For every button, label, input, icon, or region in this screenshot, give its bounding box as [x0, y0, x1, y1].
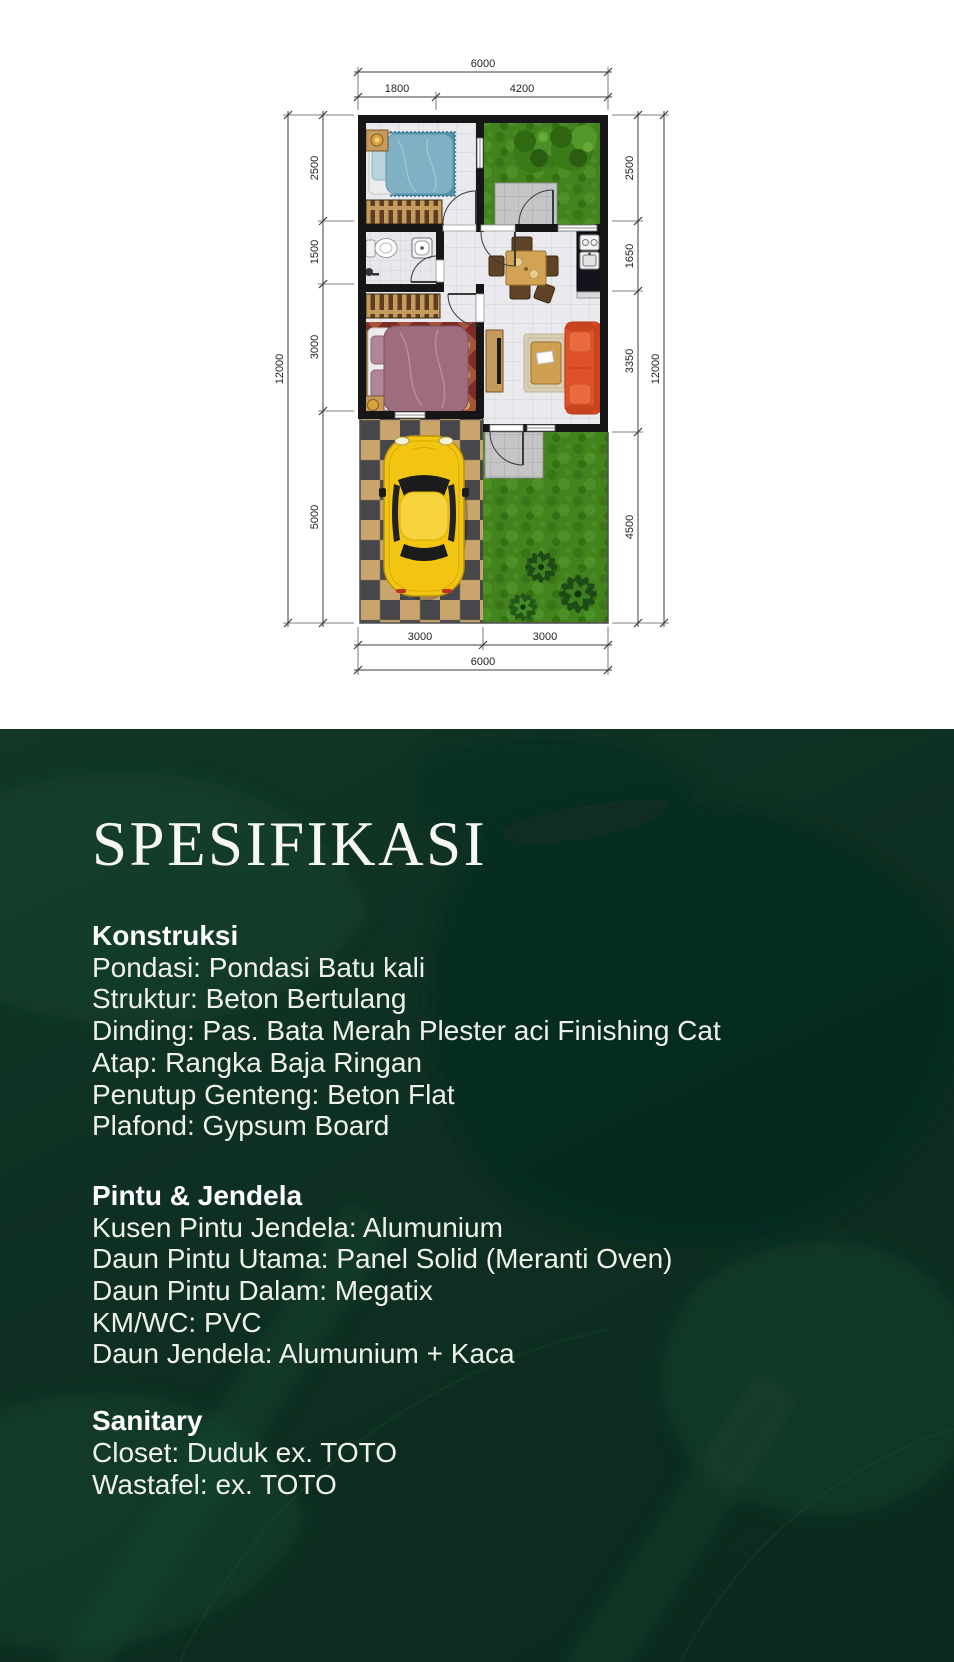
spec-line: Struktur: Beton Bertulang: [92, 983, 914, 1015]
sofa-cushion: [569, 384, 591, 404]
spec-section-heading: Sanitary: [92, 1405, 914, 1437]
toilet-tank: [366, 240, 375, 257]
specification-section: SPESIFIKASI Konstruksi Pondasi: Pondasi …: [0, 729, 954, 1662]
threshold-garden-door: [490, 425, 523, 431]
dim-right-seg-1: 1650: [624, 244, 636, 268]
dim-bottom-left: 3000: [408, 631, 432, 643]
wardrobe-1: [366, 200, 442, 224]
spec-content: SPESIFIKASI Konstruksi Pondasi: Pondasi …: [0, 729, 954, 1500]
side-porch: [485, 432, 543, 478]
dim-right-outer: 12000: [650, 354, 662, 385]
spec-line: Daun Pintu Utama: Panel Solid (Meranti O…: [92, 1243, 914, 1275]
spec-section-heading: Pintu & Jendela: [92, 1180, 914, 1212]
dim-right-seg-3: 4500: [624, 515, 636, 539]
car: [379, 435, 469, 601]
floor-plan-section: 6000 1800 4200 3000 3000 6000 2500 1500 …: [0, 0, 954, 729]
bed-2-duvet: [384, 326, 468, 412]
kitchen: [577, 232, 601, 298]
magazine: [536, 351, 553, 364]
spec-section-heading: Konstruksi: [92, 920, 914, 952]
threshold-bath-door: [436, 260, 444, 282]
shower-drain: [365, 268, 373, 276]
bedroom-1: [366, 130, 455, 224]
dining-chair: [489, 256, 504, 276]
dim-left-seg-0: 2500: [309, 156, 321, 180]
dim-bottom-right: 3000: [533, 631, 557, 643]
tv: [497, 338, 501, 384]
threshold-entrance-door: [481, 225, 515, 231]
threshold-bedroom2-door: [476, 294, 484, 322]
spec-line: Daun Jendela: Alumunium + Kaca: [92, 1338, 914, 1370]
spec-line: Wastafel: ex. TOTO: [92, 1469, 914, 1501]
dim-top-right: 4200: [510, 83, 534, 95]
toilet-bowl: [375, 239, 397, 258]
spec-line: KM/WC: PVC: [92, 1307, 914, 1339]
bed-1-duvet: [386, 134, 453, 194]
dim-bottom-total: 6000: [471, 656, 495, 668]
lamp-2: [368, 400, 379, 411]
dining-chair: [510, 284, 530, 299]
spec-line: Closet: Duduk ex. TOTO: [92, 1437, 914, 1469]
spec-line: Daun Pintu Dalam: Megatix: [92, 1275, 914, 1307]
entry-porch: [495, 183, 557, 228]
wardrobe-2: [366, 294, 440, 318]
dim-right-seg-2: 3350: [624, 349, 636, 373]
spec-line: Penutup Genteng: Beton Flat: [92, 1079, 914, 1111]
spec-line: Kusen Pintu Jendela: Alumunium: [92, 1212, 914, 1244]
spec-line: Plafond: Gypsum Board: [92, 1110, 914, 1142]
dim-top-total: 6000: [471, 58, 495, 70]
car-headlight: [395, 437, 409, 445]
spec-section-pintu-jendela: Pintu & Jendela Kusen Pintu Jendela: Alu…: [92, 1180, 914, 1370]
spec-line: Pondasi: Pondasi Batu kali: [92, 952, 914, 984]
spec-section-konstruksi: Konstruksi Pondasi: Pondasi Batu kali St…: [92, 920, 914, 1142]
spec-line: Dinding: Pas. Bata Merah Plester aci Fin…: [92, 1015, 914, 1047]
spec-line: Atap: Rangka Baja Ringan: [92, 1047, 914, 1079]
dim-top-left: 1800: [385, 83, 409, 95]
dim-left-outer: 12000: [274, 354, 286, 385]
sofa-cushion: [569, 332, 591, 352]
threshold-bedroom1-door: [443, 225, 476, 231]
flyer-page: 6000 1800 4200 3000 3000 6000 2500 1500 …: [0, 0, 954, 1662]
spec-title: SPESIFIKASI: [92, 813, 914, 876]
dim-left-seg-2: 3000: [309, 335, 321, 359]
dim-left-seg-3: 5000: [309, 505, 321, 529]
floor-plan-figure: 6000 1800 4200 3000 3000 6000 2500 1500 …: [0, 0, 954, 729]
car-headlight: [439, 437, 453, 445]
dim-left-seg-1: 1500: [309, 240, 321, 264]
car-roof: [400, 492, 448, 540]
spec-section-sanitary: Sanitary Closet: Duduk ex. TOTO Wastafel…: [92, 1405, 914, 1500]
dim-right-seg-0: 2500: [624, 156, 636, 180]
